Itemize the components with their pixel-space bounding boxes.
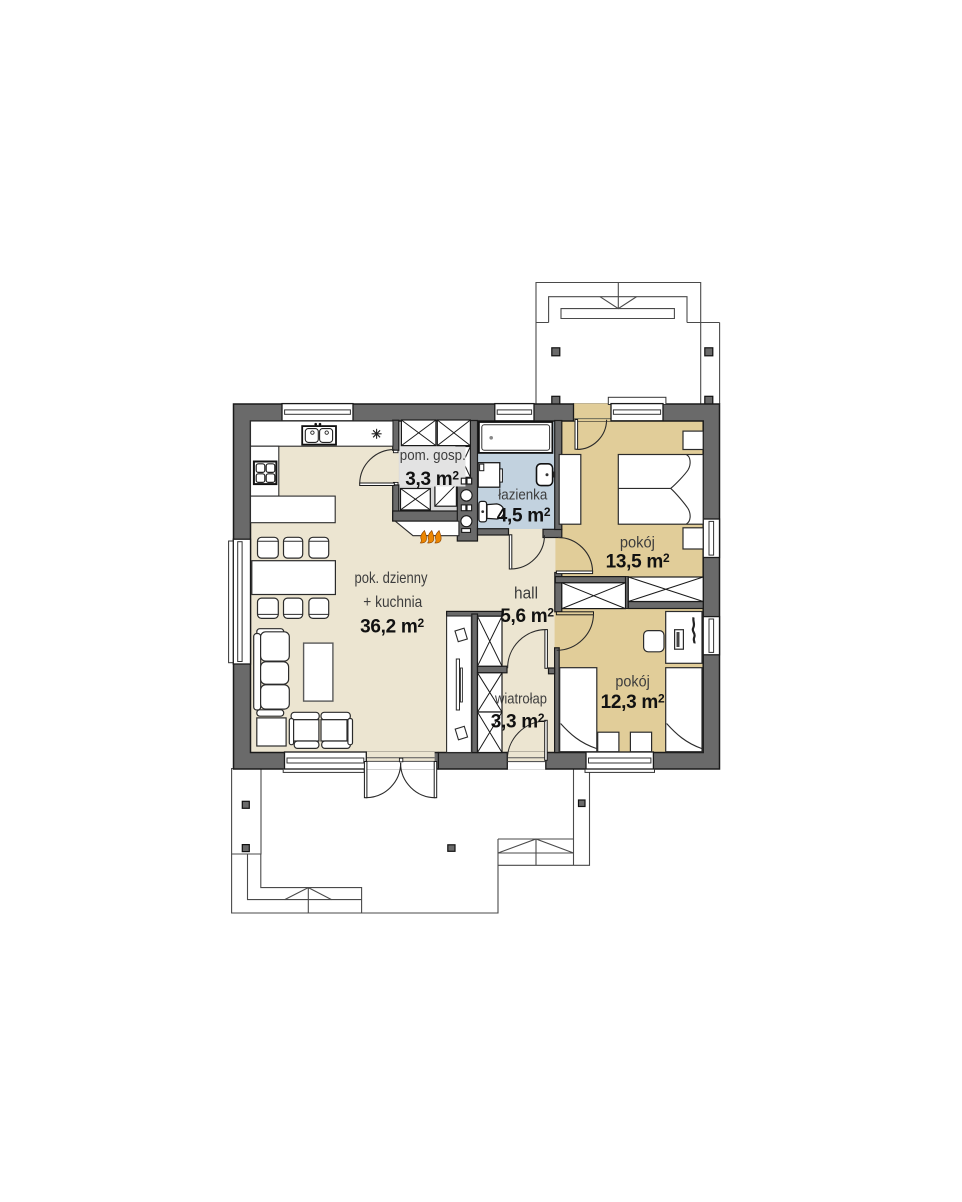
svg-text:pokój: pokój [615,673,649,690]
svg-text:hall: hall [514,585,538,603]
svg-text:12,3 m2: 12,3 m2 [601,691,665,713]
svg-text:łazienka: łazienka [498,486,548,503]
svg-text:+ kuchnia: + kuchnia [363,594,422,611]
svg-text:3,3 m2: 3,3 m2 [405,469,459,491]
svg-text:pokój: pokój [620,534,655,551]
svg-text:36,2 m2: 36,2 m2 [360,616,424,638]
svg-text:4,5 m2: 4,5 m2 [497,505,551,527]
svg-text:pom. gosp.: pom. gosp. [400,447,466,464]
svg-text:wiatrołap: wiatrołap [494,691,547,708]
svg-text:pok. dzienny: pok. dzienny [355,570,428,587]
svg-text:5,6 m2: 5,6 m2 [500,606,554,628]
svg-text:13,5 m2: 13,5 m2 [606,551,670,573]
svg-text:3,3 m2: 3,3 m2 [491,711,545,733]
